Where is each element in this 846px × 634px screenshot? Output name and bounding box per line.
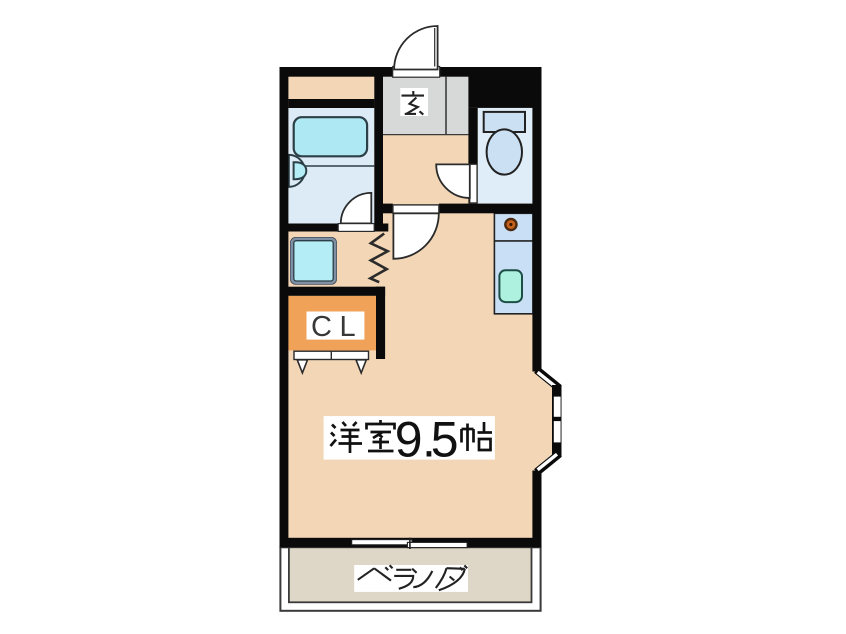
svg-text:9: 9: [395, 412, 423, 468]
svg-text:CL: CL: [311, 311, 363, 343]
svg-text:5: 5: [431, 412, 459, 468]
